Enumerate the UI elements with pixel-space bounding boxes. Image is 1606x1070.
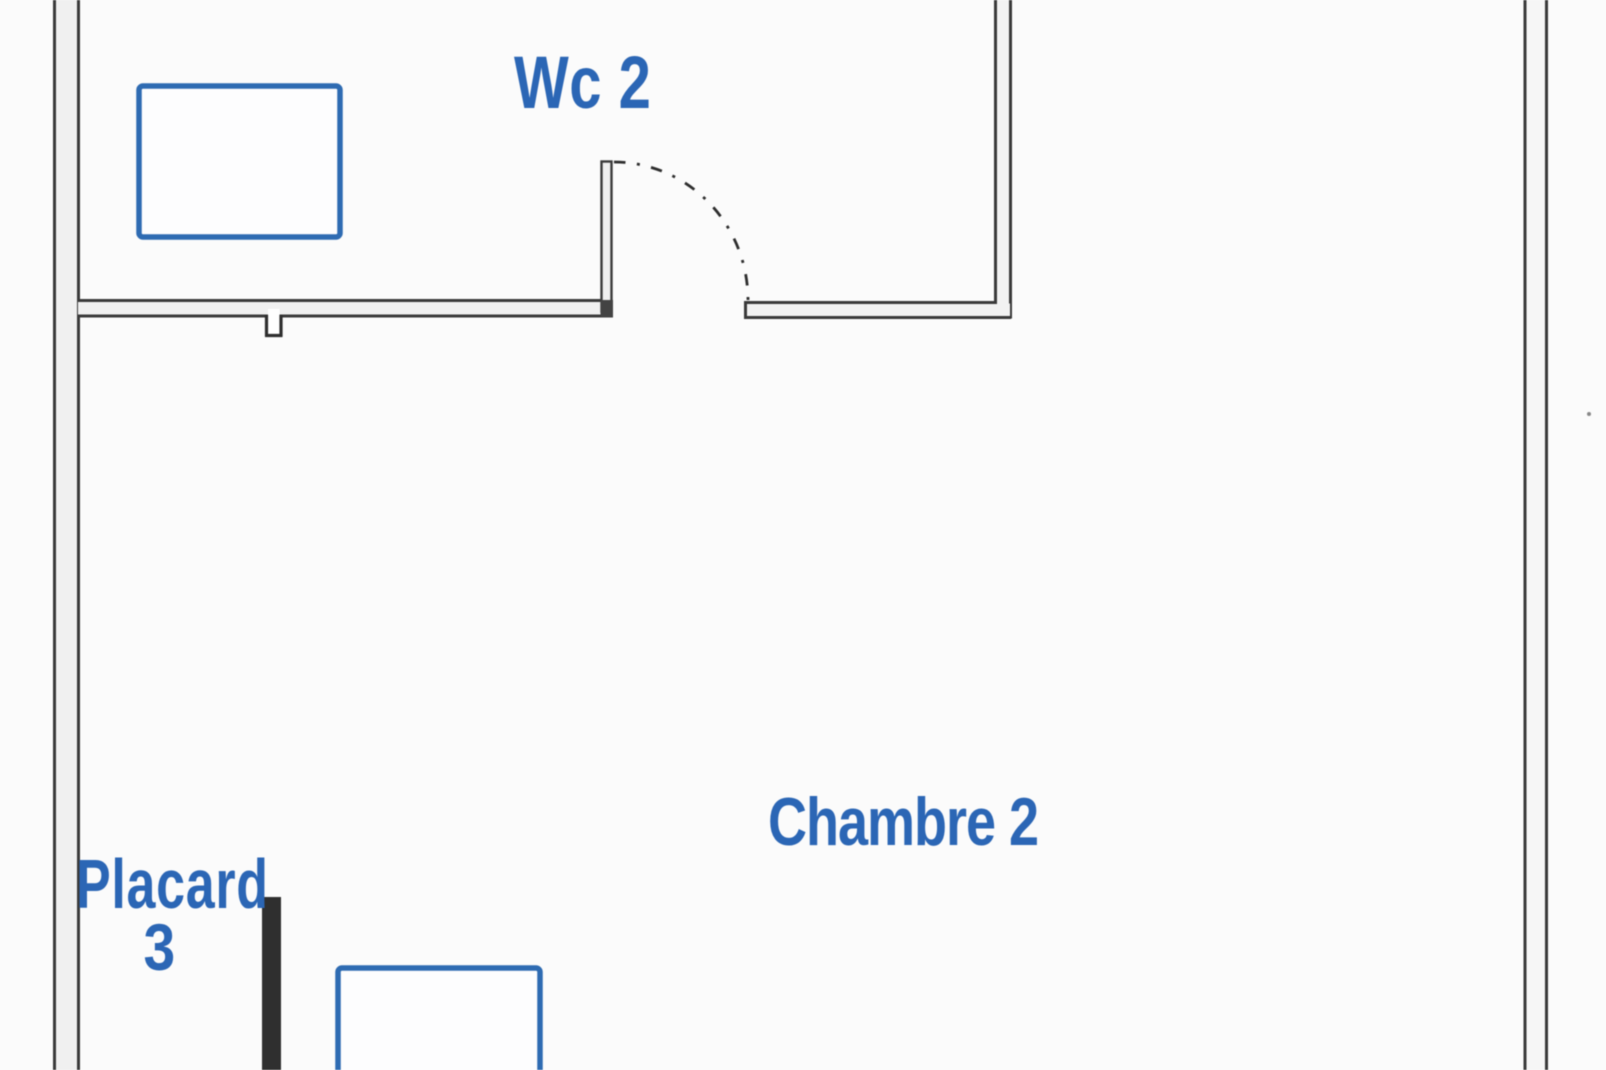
svg-text:Chambre 2: Chambre 2	[768, 784, 1038, 860]
svg-text:Wc 2: Wc 2	[514, 42, 651, 124]
svg-text:3: 3	[144, 911, 176, 985]
